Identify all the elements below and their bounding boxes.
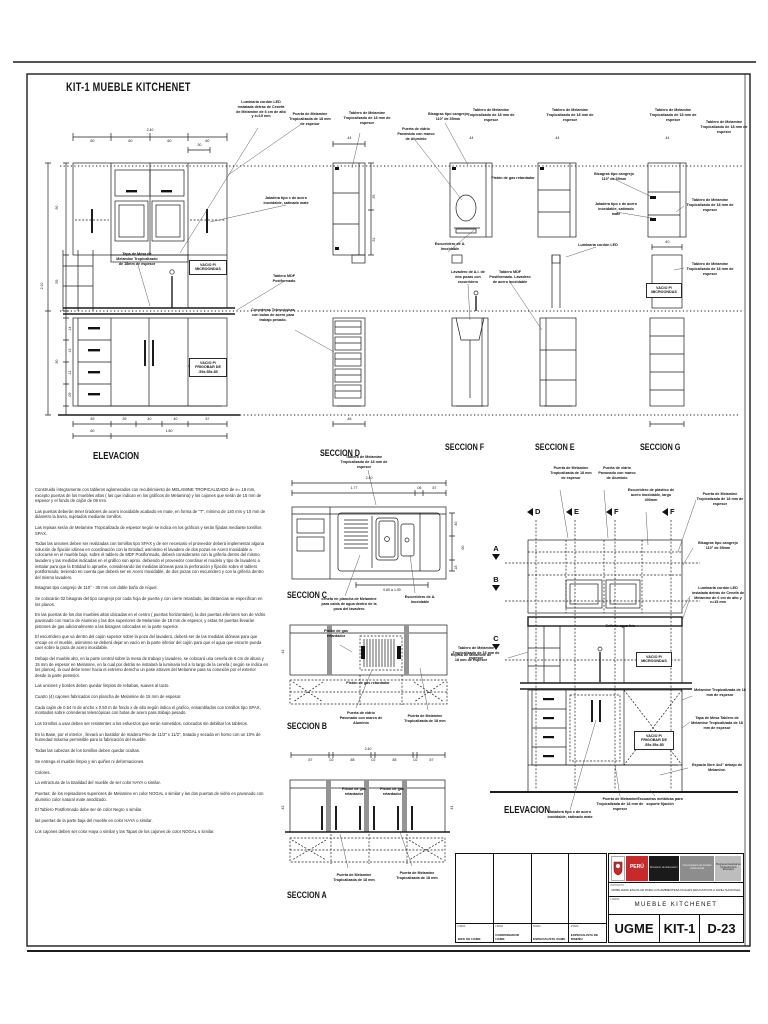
note-paragraph: El escurridero que va dentro del cajón s… (35, 634, 268, 651)
ministerio-educacion-logo: Ministerio de Educación (649, 856, 679, 881)
dimension-label: 2.40 (147, 128, 154, 132)
firma-label: FIRMA (495, 925, 529, 928)
kit-code: KIT-1 (660, 915, 700, 942)
dept-code: UGME (609, 915, 660, 942)
annotation-label: Luminaria cordón LED instalada detrás de… (690, 586, 746, 605)
cut-arrow-icon (527, 508, 533, 516)
dimension-label: .40 (454, 522, 458, 527)
dimension-label: .60 (205, 139, 210, 143)
annotation-label: Repisa de Melamine de 18 mm de espesor (450, 653, 492, 663)
peru-brand-logo: PERÚ (626, 856, 647, 881)
dimension-label: .30 (197, 143, 202, 147)
annotation-label: Escuadras metálicas para soporte fijació… (636, 797, 684, 807)
note-paragraph: Las puertas deberán tener tiradores de a… (35, 509, 268, 520)
firma-label: FIRMA (571, 925, 605, 928)
cut-marker-letter: E (574, 507, 579, 516)
signature-space (456, 854, 493, 923)
dimension-label: 0.80 a 1.00 (383, 588, 401, 592)
dimension-label: .44 (555, 136, 560, 140)
annotation-label: Pistón de gas retardador (334, 787, 374, 797)
note-paragraph: Los cajones deben ser color Haya o simil… (35, 829, 268, 835)
annotation-label: VACIO P/ MICROONDAS (636, 652, 672, 667)
annotation-label: Tablero MDF Postformado (264, 274, 304, 284)
pronied-logo: Programa Nacional de Infraestructura Edu… (715, 856, 741, 881)
cut-arrow-icon (492, 554, 500, 560)
signature-band: FIRMAESPECIALISTA UGME (532, 923, 569, 942)
project-name: MOBILIARIO ESCOLAR PARA LOS AMBIENTES/LO… (609, 888, 743, 892)
section-cut-marker: E (566, 507, 579, 516)
dimension-label: 1.80 (166, 429, 173, 433)
dimension-label: .58 (392, 758, 397, 762)
dimension-label: .57 (432, 486, 437, 490)
dimension-label: .60 (461, 546, 465, 551)
dimension-label: .60 (167, 139, 172, 143)
note-paragraph: Las uniones y bordes deben quedar limpio… (35, 683, 268, 689)
dimension-label: .58 (350, 758, 355, 762)
annotation-label: Correderas Telescópicas con bolas de ace… (248, 308, 298, 322)
note-paragraph: Todas las uniones deben ser realizadas c… (35, 541, 268, 580)
annotation-label: Pistón de gas retardador (334, 681, 402, 686)
annotation-label: Tapa de Mesa Tablero de Melamine Tropica… (690, 716, 744, 730)
section-cut-marker: B (492, 575, 500, 591)
dimension-label: .31 (372, 238, 376, 243)
note-paragraph: Se colocarán 02 bisagras del tipo cangre… (35, 596, 268, 607)
title-block: FIRMAJEFE DE UGMEFIRMACOORDINADOR UGMEFI… (455, 853, 742, 941)
annotation-label: Puerta de Melamine Tropicalizada de 18 m… (548, 466, 594, 480)
annotation-label: Escurridero de A. Inoxidable (398, 595, 442, 605)
dimension-label: .90 (55, 206, 59, 211)
dimension-label: .44 (469, 136, 474, 140)
general-notes: Construido íntegramente con tableros agl… (35, 487, 268, 840)
dimension-label: .18 (454, 566, 458, 571)
dimension-label: 2.40 (365, 747, 372, 751)
section-cut-marker: F (662, 507, 675, 516)
signature-role: ESPECIALISTA UGME (533, 937, 567, 941)
section-label: SECCION G (640, 442, 680, 452)
annotation-label: VACIO P/ MICROONDAS (189, 260, 227, 275)
section-cut-marker: D (527, 507, 540, 516)
annotation-label: VACIO P/ MICROONDAS (646, 283, 682, 298)
dimension-label: .42 (281, 650, 285, 655)
annotation-label: Grifería agua fría (598, 624, 642, 629)
annotation-label: Espacio libre 4x4" debajo de Melamine. (690, 763, 744, 773)
signature-role: COORDINADOR UGME (495, 933, 529, 941)
cut-arrow-icon (566, 508, 572, 516)
annotation-label: Lavadero de A.I. de dos pozas con escurr… (448, 270, 488, 284)
annotation-label: VACIO P/ FRIGOBAR DE .55x.55x.85 (189, 358, 227, 377)
annotation-label: Jaladera tipo c de acero inoxidable, sat… (594, 202, 638, 216)
dimension-label: .44 (665, 136, 670, 140)
annotation-label: Luminaria cordón LED (576, 243, 620, 248)
annotation-label: Melamine Tropicalizada de 18 mm de espes… (694, 688, 746, 698)
firma-label: FIRMA (458, 925, 492, 928)
annotation-label: Escurridero de plástico de acero inoxida… (626, 488, 676, 502)
note-paragraph: Las repisas serán de Melamine Tropicaliz… (35, 525, 268, 536)
dimension-label: .12 (68, 349, 72, 354)
dimension-label: 2.10 (40, 283, 44, 290)
section-cut-marker: A (492, 544, 500, 560)
dimension-label: .60 (128, 139, 133, 143)
dimension-label: .02 (329, 758, 334, 762)
cut-arrow-icon (492, 644, 500, 650)
dimension-label: .44 (347, 136, 352, 140)
note-paragraph: las puertas de la parte baja del mueble … (35, 818, 268, 824)
signature-space (532, 854, 569, 923)
note-paragraph: Cada cajón de 0.54 m de ancho x 0.50 m d… (35, 705, 268, 716)
dimension-label: .57 (429, 758, 434, 762)
annotation-label: Jaladera tipo c de acero inoxidable, sat… (262, 196, 310, 206)
signature-cell: FIRMAJEFE DE UGME (456, 854, 494, 942)
dimension-label: .02 (371, 758, 376, 762)
section-label: SECCION B (287, 721, 327, 731)
cut-marker-letter: C (493, 634, 498, 643)
sheet-code: D-23 (700, 915, 743, 942)
annotation-label: Tablero de Melamine Tropicalizado de 18 … (466, 108, 516, 122)
dimension-label: .12 (68, 371, 72, 376)
annotation-label: Puerta de vidrio Pavonado con marco de A… (596, 466, 638, 480)
dimension-label: .57 (205, 417, 210, 421)
section-label: ELEVACION (93, 451, 139, 462)
cut-arrow-icon (492, 585, 500, 591)
annotation-label: cenefa en plancha de Melamine para caída… (318, 597, 380, 611)
annotation-label: Puerta de Melamine Tropicalizada de 18 m… (694, 492, 746, 506)
signature-cell: FIRMACOORDINADOR UGME (494, 854, 532, 942)
drawing-sheet: KIT-1 MUEBLE KITCHENET ELEVACIONSECCION … (0, 0, 768, 1024)
dimension-label: .14 (68, 327, 72, 332)
dimension-label: .40 (173, 417, 178, 421)
signature-space (569, 854, 606, 923)
sheet-name: MUEBLE KITCHENET (609, 902, 743, 908)
cut-marker-letter: B (493, 575, 498, 584)
annotation-label: Pistón de gas retardador (316, 629, 356, 639)
dimension-label: .06 (417, 486, 422, 490)
note-paragraph: En las puertas de los dos muebles altos … (35, 612, 268, 629)
viceministerio-logo: Viceministerio de Gestión Institucional (680, 856, 714, 881)
annotation-label: Puerta de Melamine Tropicalizada de 18 m… (400, 714, 450, 724)
cut-marker-letter: A (493, 544, 498, 553)
cut-arrow-icon (662, 508, 668, 516)
cut-arrow-icon (606, 508, 612, 516)
signature-role: JEFE DE UGME (458, 937, 492, 941)
dimension-label: .02 (413, 758, 418, 762)
signature-role: ESPECIALISTA DE DISEÑO (571, 933, 605, 941)
signature-cell: FIRMAESPECIALISTA DE DISEÑO (569, 854, 606, 942)
annotation-label: Tablero de Melamine Tropicalizado de 18 … (338, 455, 390, 469)
project-row: PROYECTO MOBILIARIO ESCOLAR PARA LOS AMB… (609, 883, 743, 897)
signature-table: FIRMAJEFE DE UGMEFIRMACOORDINADOR UGMEFI… (455, 853, 607, 943)
dimension-label: .55 (55, 280, 59, 285)
annotation-label: Pistón de gas retardador (372, 787, 412, 797)
annotation-label: Tablero de Melamine Tropicalizado de 18 … (700, 120, 748, 134)
annotation-label: Bisagras tipo cangrejo 110° de 35mm (694, 541, 742, 551)
dimension-label: .42 (281, 806, 285, 811)
annotation-label: Bisagras tipo cangrejo 110° de 35mm (426, 112, 470, 122)
section-label: SECCION A (287, 890, 327, 900)
signature-band: FIRMAESPECIALISTA DE DISEÑO (569, 923, 606, 942)
firma-label: FIRMA (533, 925, 567, 928)
section-label: SECCION E (535, 442, 575, 452)
section-cut-marker: F (606, 507, 619, 516)
annotation-label: Jaladera tipo c de acero inoxidable, sat… (546, 810, 594, 820)
cut-marker-letter: F (614, 507, 619, 516)
annotation-label: Puerta de Melamine Tropicalizada de 18 m… (330, 873, 378, 883)
dimension-label: 2.40 (366, 476, 373, 480)
annotation-label: Tablero de Melamine Tropicalizado de 18 … (545, 108, 595, 122)
note-paragraph: La estructura de la totalidad del mueble… (35, 780, 268, 786)
signature-band: FIRMAJEFE DE UGME (456, 923, 493, 942)
note-paragraph: Debajo del mueble alto, en la parte cent… (35, 656, 268, 678)
dimension-label: .40 (665, 240, 670, 244)
note-paragraph: Se entrega el mueble limpio y sin quiñes… (35, 759, 268, 765)
dimension-label: 1.77 (351, 486, 358, 490)
sheet-name-label: LAMINA (611, 898, 620, 901)
section-label: ELEVACION (504, 805, 550, 816)
dimension-label: .60 (90, 139, 95, 143)
sheet-name-row: LAMINA MUEBLE KITCHENET (609, 897, 743, 915)
note-paragraph: Colores. (35, 770, 268, 776)
dimension-label: .59 (90, 417, 95, 421)
dimension-label: .09 (68, 393, 72, 398)
note-paragraph: El Tablero Postformado debe ser de color… (35, 807, 268, 813)
cut-marker-letter: F (670, 507, 675, 516)
note-paragraph: Construido íntegramente con tableros agl… (35, 487, 268, 504)
note-paragraph: Puertas: de los repisadores superiores d… (35, 791, 268, 802)
note-paragraph: Cuatro (4) cajones fabricados con planch… (35, 694, 268, 700)
annotation-label: Tablero MDF Postformado. Lavadero de ace… (488, 270, 532, 284)
dimension-label: .44 (450, 806, 454, 811)
peru-coat-of-arms-icon (611, 856, 626, 881)
signature-band: FIRMACOORDINADOR UGME (494, 923, 531, 942)
dimension-label: .60 (90, 429, 95, 433)
annotation-label: Tablero de Melamine Tropicalizado de 18 … (684, 262, 736, 276)
dimension-label: .90 (55, 360, 59, 365)
note-paragraph: En la Base, por el interior , llevará un… (35, 732, 268, 743)
annotation-label: Pistón de gas retardador (490, 176, 536, 181)
note-paragraph: Bisagras tipo cangrejo de 110° - 35 mm c… (35, 585, 268, 591)
dimension-label: .40 (147, 417, 152, 421)
annotation-label: Bisagras tipo cangrejo 110° de 35mm (592, 172, 636, 182)
dimension-label: .35 (372, 195, 376, 200)
signature-space (494, 854, 531, 923)
note-paragraph: Todas las cabezas de los tornillos deben… (35, 748, 268, 754)
sheet-title: KIT-1 MUEBLE KITCHENET (66, 80, 191, 94)
title-block-right: PERÚ Ministerio de Educación Viceministe… (608, 853, 744, 943)
project-label: PROYECTO (611, 884, 624, 887)
annotation-label: Puerta de vidrio Pavonado con marco de A… (338, 711, 384, 725)
dimension-label: .46 (347, 417, 352, 421)
section-label: SECCION F (445, 442, 484, 452)
annotation-label: Puerta de Melamine Tropicalizada de 18 m… (392, 871, 442, 881)
annotation-label: Tablero de Melamine Tropicalizado de 18 … (343, 111, 391, 125)
annotation-label: Tablero de Melamine Tropicalizado de 18 … (684, 198, 736, 212)
code-row: UGME KIT-1 D-23 (609, 915, 743, 942)
annotation-label: Puerta de Melamine Tropicalizada de 18 m… (288, 112, 332, 126)
cut-marker-letter: D (535, 507, 540, 516)
annotation-label: VACIO P/ FRIGOBAR DE .55x.55x.85 (634, 731, 674, 750)
annotation-label: Luminaria cordón LED instalada detrás de… (236, 100, 286, 119)
annotation-label: Escurridero de A. Inoxidable (428, 242, 472, 252)
section-cut-marker: C (492, 634, 500, 650)
signature-cell: FIRMAESPECIALISTA UGME (532, 854, 570, 942)
logo-row: PERÚ Ministerio de Educación Viceministe… (609, 854, 743, 883)
dimension-label: .39 (122, 417, 127, 421)
dimension-label: .57 (308, 758, 313, 762)
note-paragraph: Los tornillos a usar deben ser resistent… (35, 721, 268, 727)
annotation-label: Tablero de Melamine Tropicalizado de 18 … (648, 108, 698, 122)
annotation-label: Puerta de vidrio Pavonado con marco de A… (396, 127, 436, 141)
annotation-label: Tapa de Mesa de Melamine Tropicalizado d… (116, 252, 158, 266)
